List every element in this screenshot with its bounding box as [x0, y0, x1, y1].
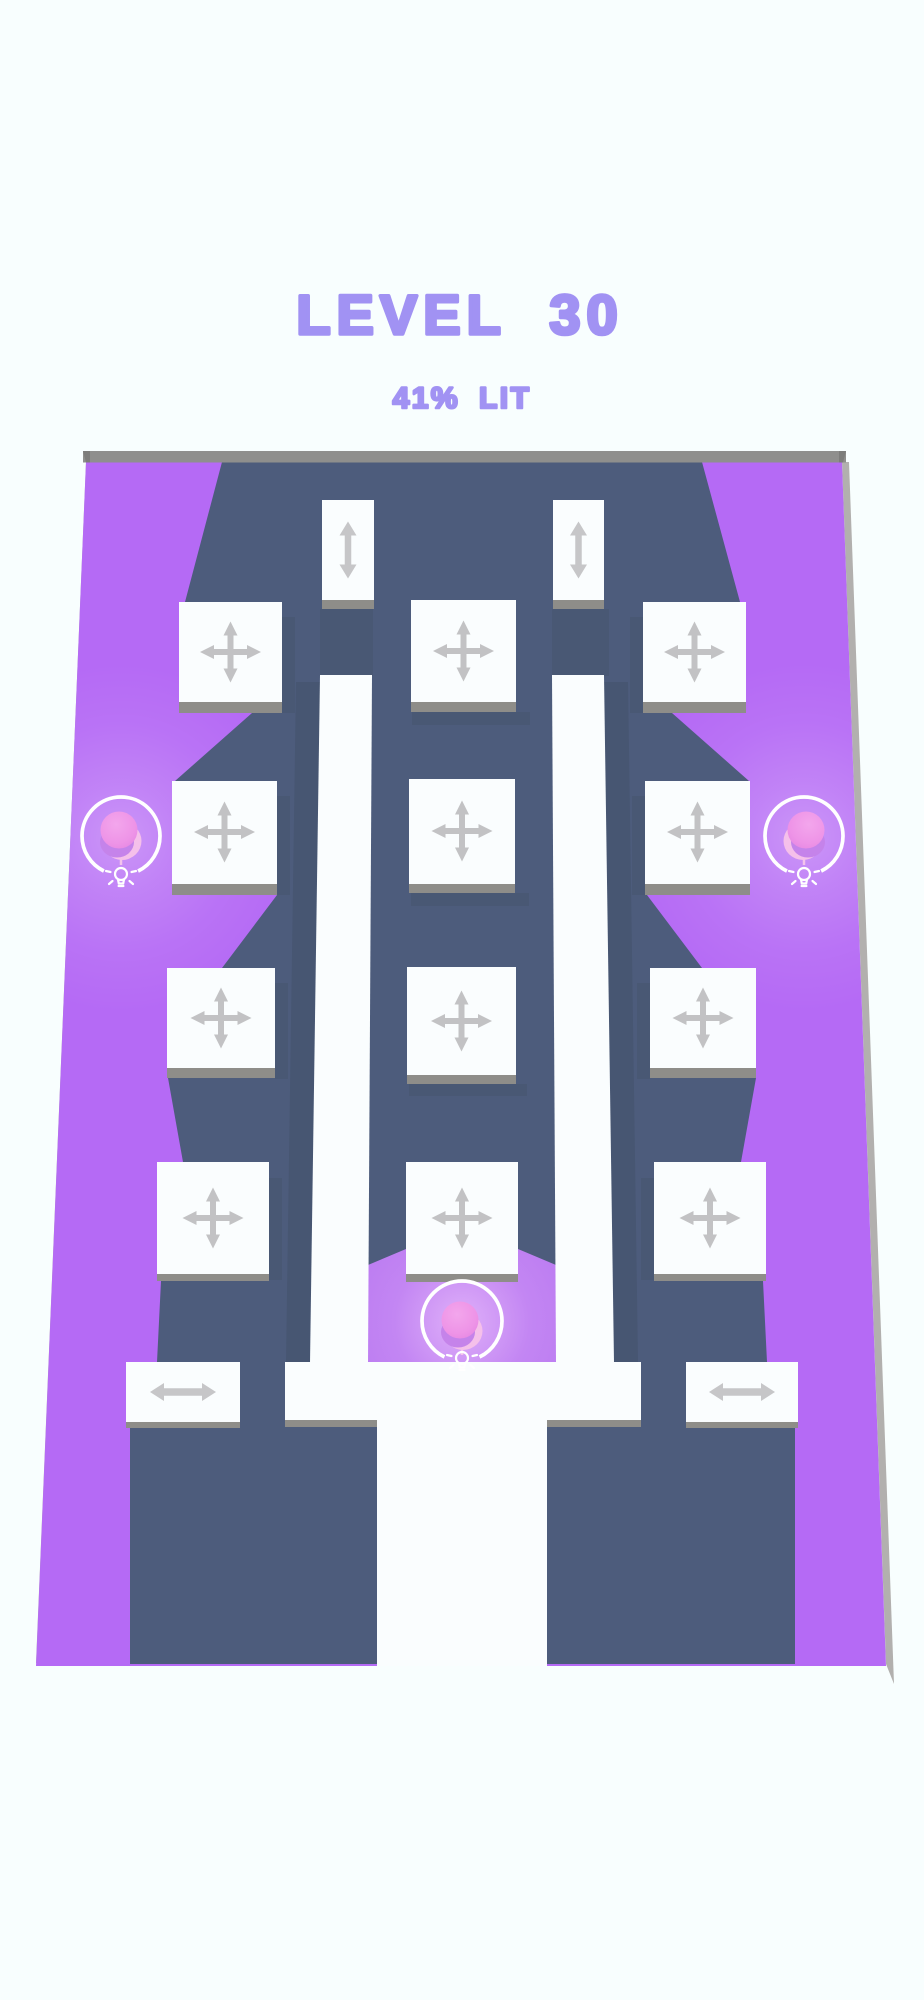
svg-text:LEVEL 30: LEVEL 30: [296, 283, 623, 346]
svg-text:41% LIT: 41% LIT: [393, 382, 532, 415]
